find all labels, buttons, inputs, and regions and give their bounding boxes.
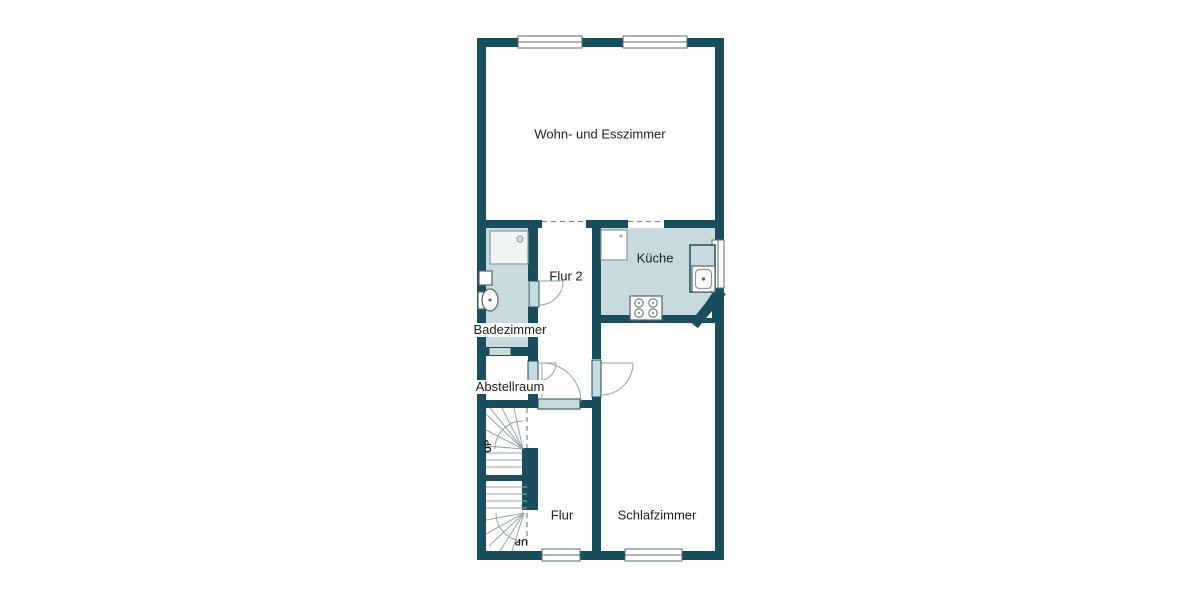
room-label-storage: Abstellraum [474,380,547,394]
stair-upper-flight [486,408,527,467]
shower-icon [490,231,528,264]
window-living-left [518,36,582,48]
room-label-kitchen: Küche [637,251,674,266]
room-label-bedroom: Schlafzimmer [618,508,697,523]
refrigerator-icon [601,230,627,260]
stair-up-label-upper: UP [483,439,493,453]
stove-icon [630,296,662,320]
door-bedroom [592,360,633,397]
toilet-icon [478,289,498,311]
window-hall [542,549,580,561]
door-bathroom [529,281,563,307]
door-bathroom-storage-panel [489,348,511,356]
room-label-bathroom: Badezimmer [472,323,549,337]
room-label-living: Wohn- und Esszimmer [534,127,665,142]
sink-icon [692,266,715,292]
window-living-right [623,36,687,48]
washbasin-icon [479,271,492,285]
window-bedroom [625,549,682,561]
room-label-hall2: Flur 2 [549,269,582,284]
floorplan-page: Wohn- und Esszimmer Flur 2 Küche Badezim… [0,0,1200,600]
stair-up-label-lower: UP [514,537,528,547]
floorplan-canvas [0,0,1200,600]
room-label-hall: Flur [551,508,573,523]
